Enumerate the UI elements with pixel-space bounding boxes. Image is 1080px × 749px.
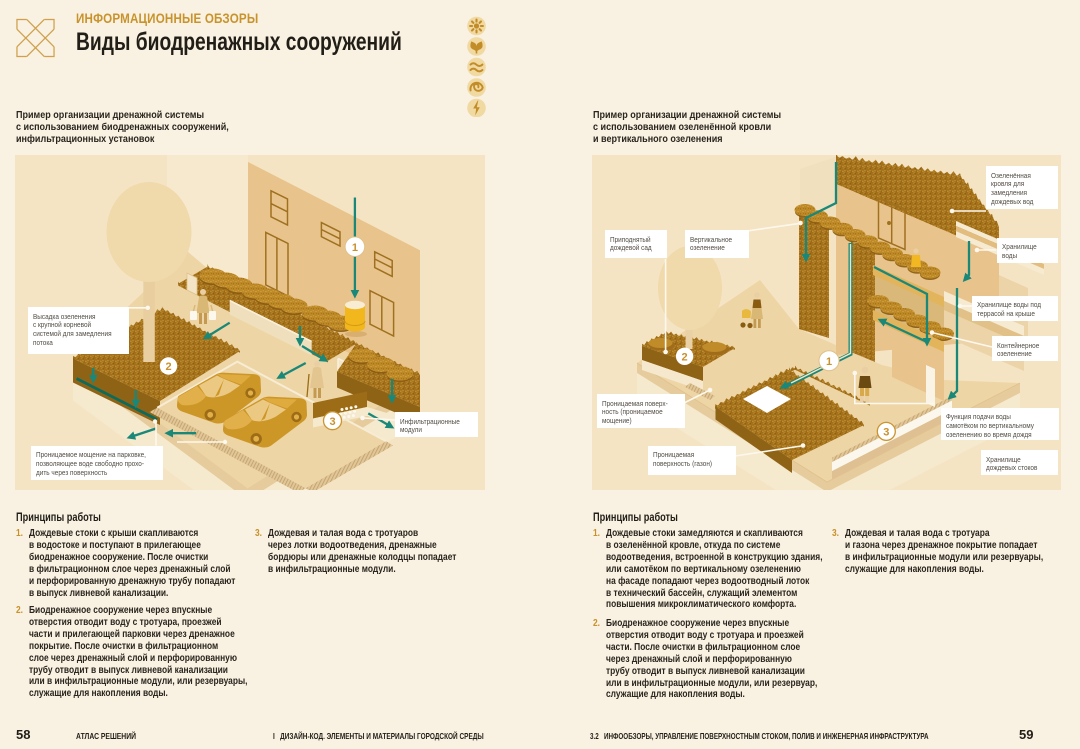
svg-text:3: 3 <box>329 416 335 428</box>
svg-text:2: 2 <box>165 361 171 373</box>
svg-text:1: 1 <box>352 242 358 254</box>
svg-text:3: 3 <box>883 427 889 439</box>
svg-text:2: 2 <box>682 351 688 363</box>
svg-text:1: 1 <box>826 356 832 368</box>
